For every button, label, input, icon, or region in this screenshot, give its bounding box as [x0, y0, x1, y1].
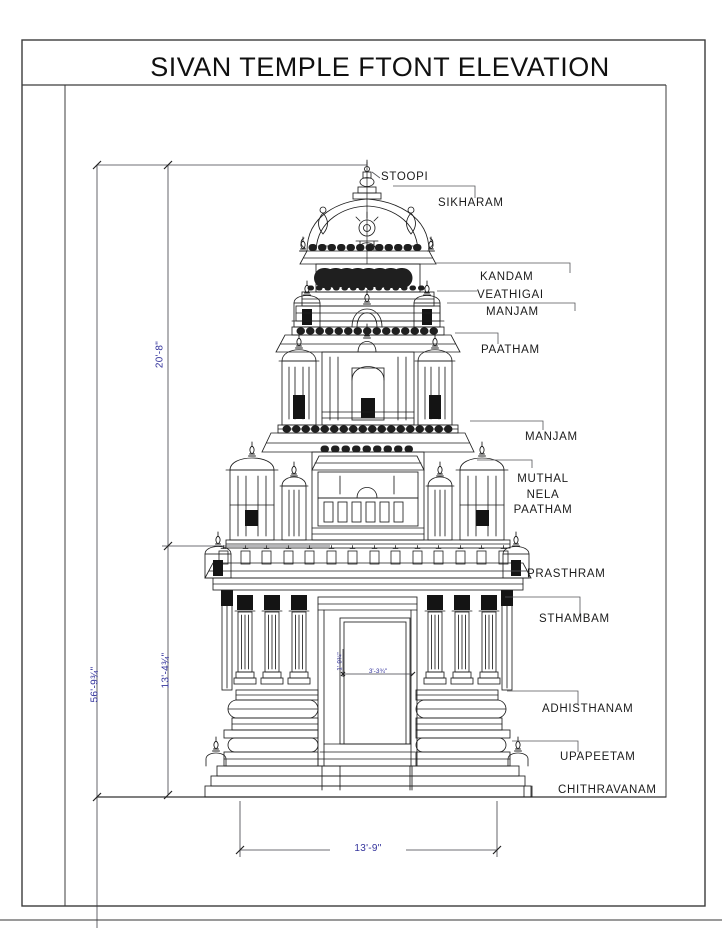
- label-manjam-upper: MANJAM: [486, 306, 539, 318]
- label-sthambam: STHAMBAM: [539, 613, 610, 625]
- label-sikharam: SIKHARAM: [438, 197, 504, 209]
- dim-base-width: 13'-9": [330, 843, 406, 854]
- label-muthal-line3: PAATHAM: [508, 503, 578, 519]
- dimension-lines: [93, 161, 501, 928]
- label-adhisthanam: ADHISTHANAM: [542, 703, 633, 715]
- label-upapeetam: UPAPEETAM: [560, 751, 636, 763]
- page-title: SIVAN TEMPLE FTONT ELEVATION: [38, 52, 722, 83]
- label-muthal-line1: MUTHAL: [508, 472, 578, 488]
- label-muthal-line2: NELA: [508, 488, 578, 504]
- label-paatham: PAATHAM: [481, 344, 540, 356]
- dim-total-height: 56'-9¾": [90, 645, 101, 725]
- drawing-sheet: SIVAN TEMPLE FTONT ELEVATION STOOPI SIKH…: [0, 0, 722, 952]
- label-chithravanam: CHITHRAVANAM: [558, 784, 657, 796]
- label-muthal-nela-paatham: MUTHAL NELA PAATHAM: [508, 472, 578, 519]
- dim-door-width: 3'-3¾": [355, 668, 401, 675]
- dim-upper-height: 20'-8": [155, 325, 166, 385]
- label-kandam: KANDAM: [480, 271, 533, 283]
- label-manjam-lower: MANJAM: [525, 431, 578, 443]
- dim-door-height: 1'-9¾": [337, 640, 344, 684]
- label-veathigai: VEATHIGAI: [477, 289, 544, 301]
- elevation-drawing: [0, 0, 722, 952]
- label-prasthram: PRASTHRAM: [527, 568, 606, 580]
- label-stoopi: STOOPI: [381, 171, 428, 183]
- label-leader-lines: [372, 172, 580, 752]
- temple-structure: [97, 160, 666, 797]
- dim-lower-height: 13'-4¾": [161, 631, 172, 711]
